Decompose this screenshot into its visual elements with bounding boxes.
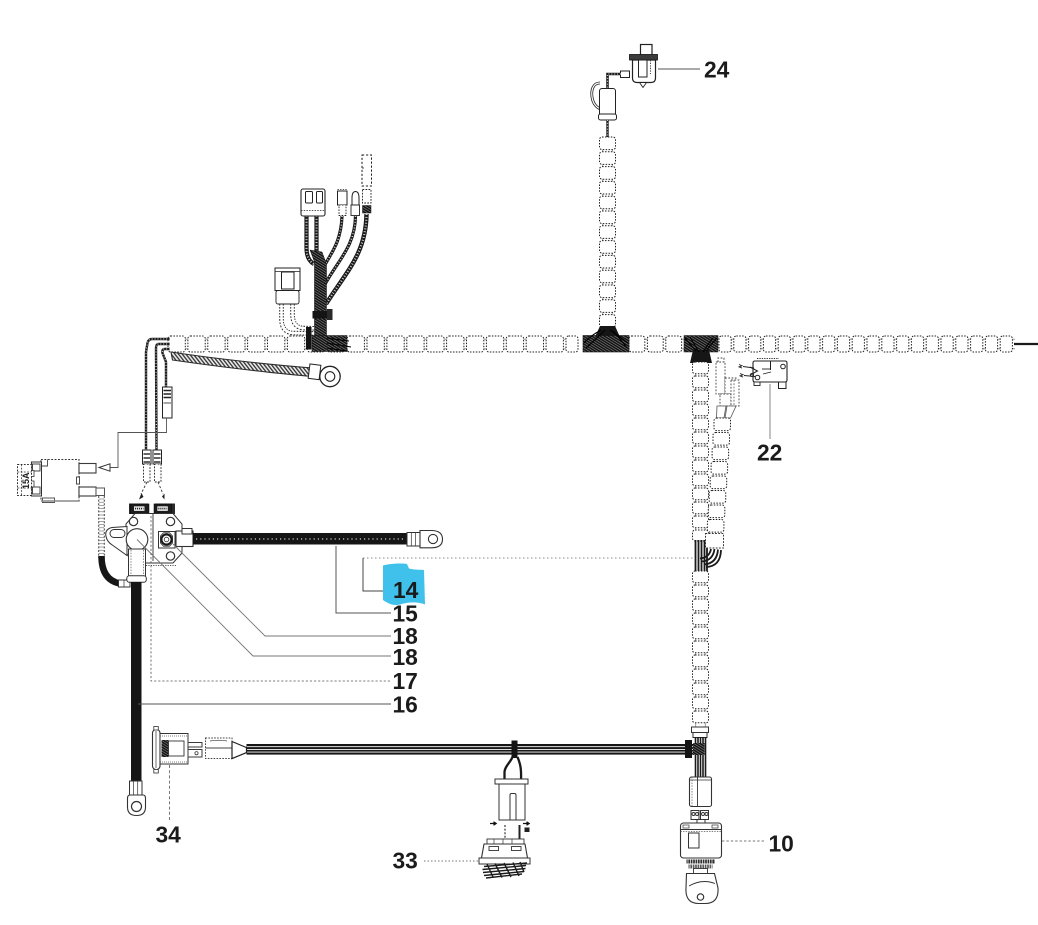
- svg-text:14: 14: [393, 577, 419, 603]
- svg-text:22: 22: [757, 440, 782, 466]
- svg-text:17: 17: [393, 668, 418, 694]
- svg-text:34: 34: [156, 821, 182, 847]
- svg-text:33: 33: [393, 847, 418, 873]
- svg-text:10: 10: [769, 830, 794, 856]
- svg-text:16: 16: [393, 691, 418, 717]
- svg-text:18: 18: [393, 644, 418, 670]
- svg-text:24: 24: [704, 57, 730, 83]
- svg-text:15A: 15A: [21, 472, 31, 489]
